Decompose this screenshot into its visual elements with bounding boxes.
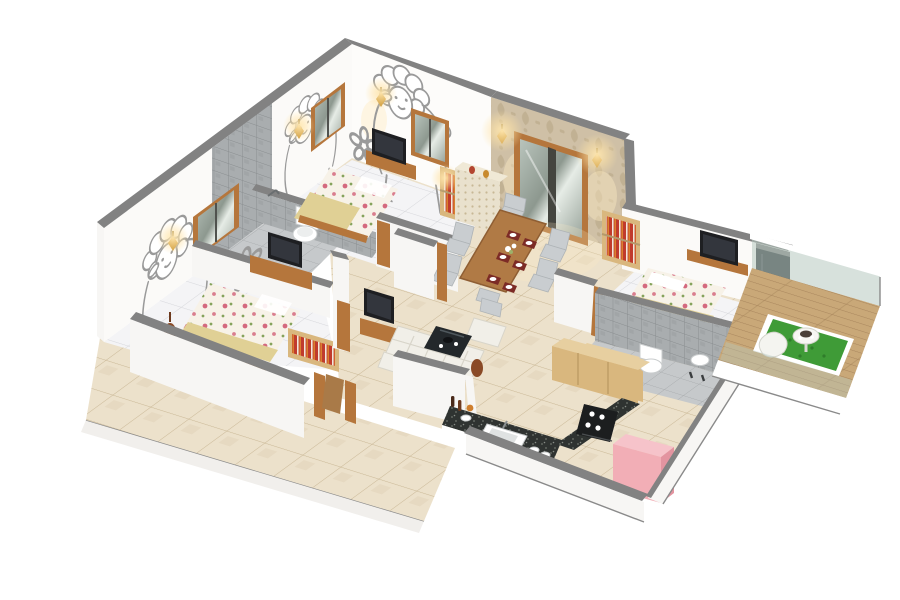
floor-vase — [471, 359, 483, 377]
door-frame — [377, 220, 390, 268]
floor-plan-render — [0, 0, 900, 600]
bedroom2-east-wall — [330, 250, 350, 352]
basin — [691, 355, 709, 366]
floor-plan-svg — [0, 0, 900, 600]
dining-east-wall-top — [624, 138, 636, 206]
